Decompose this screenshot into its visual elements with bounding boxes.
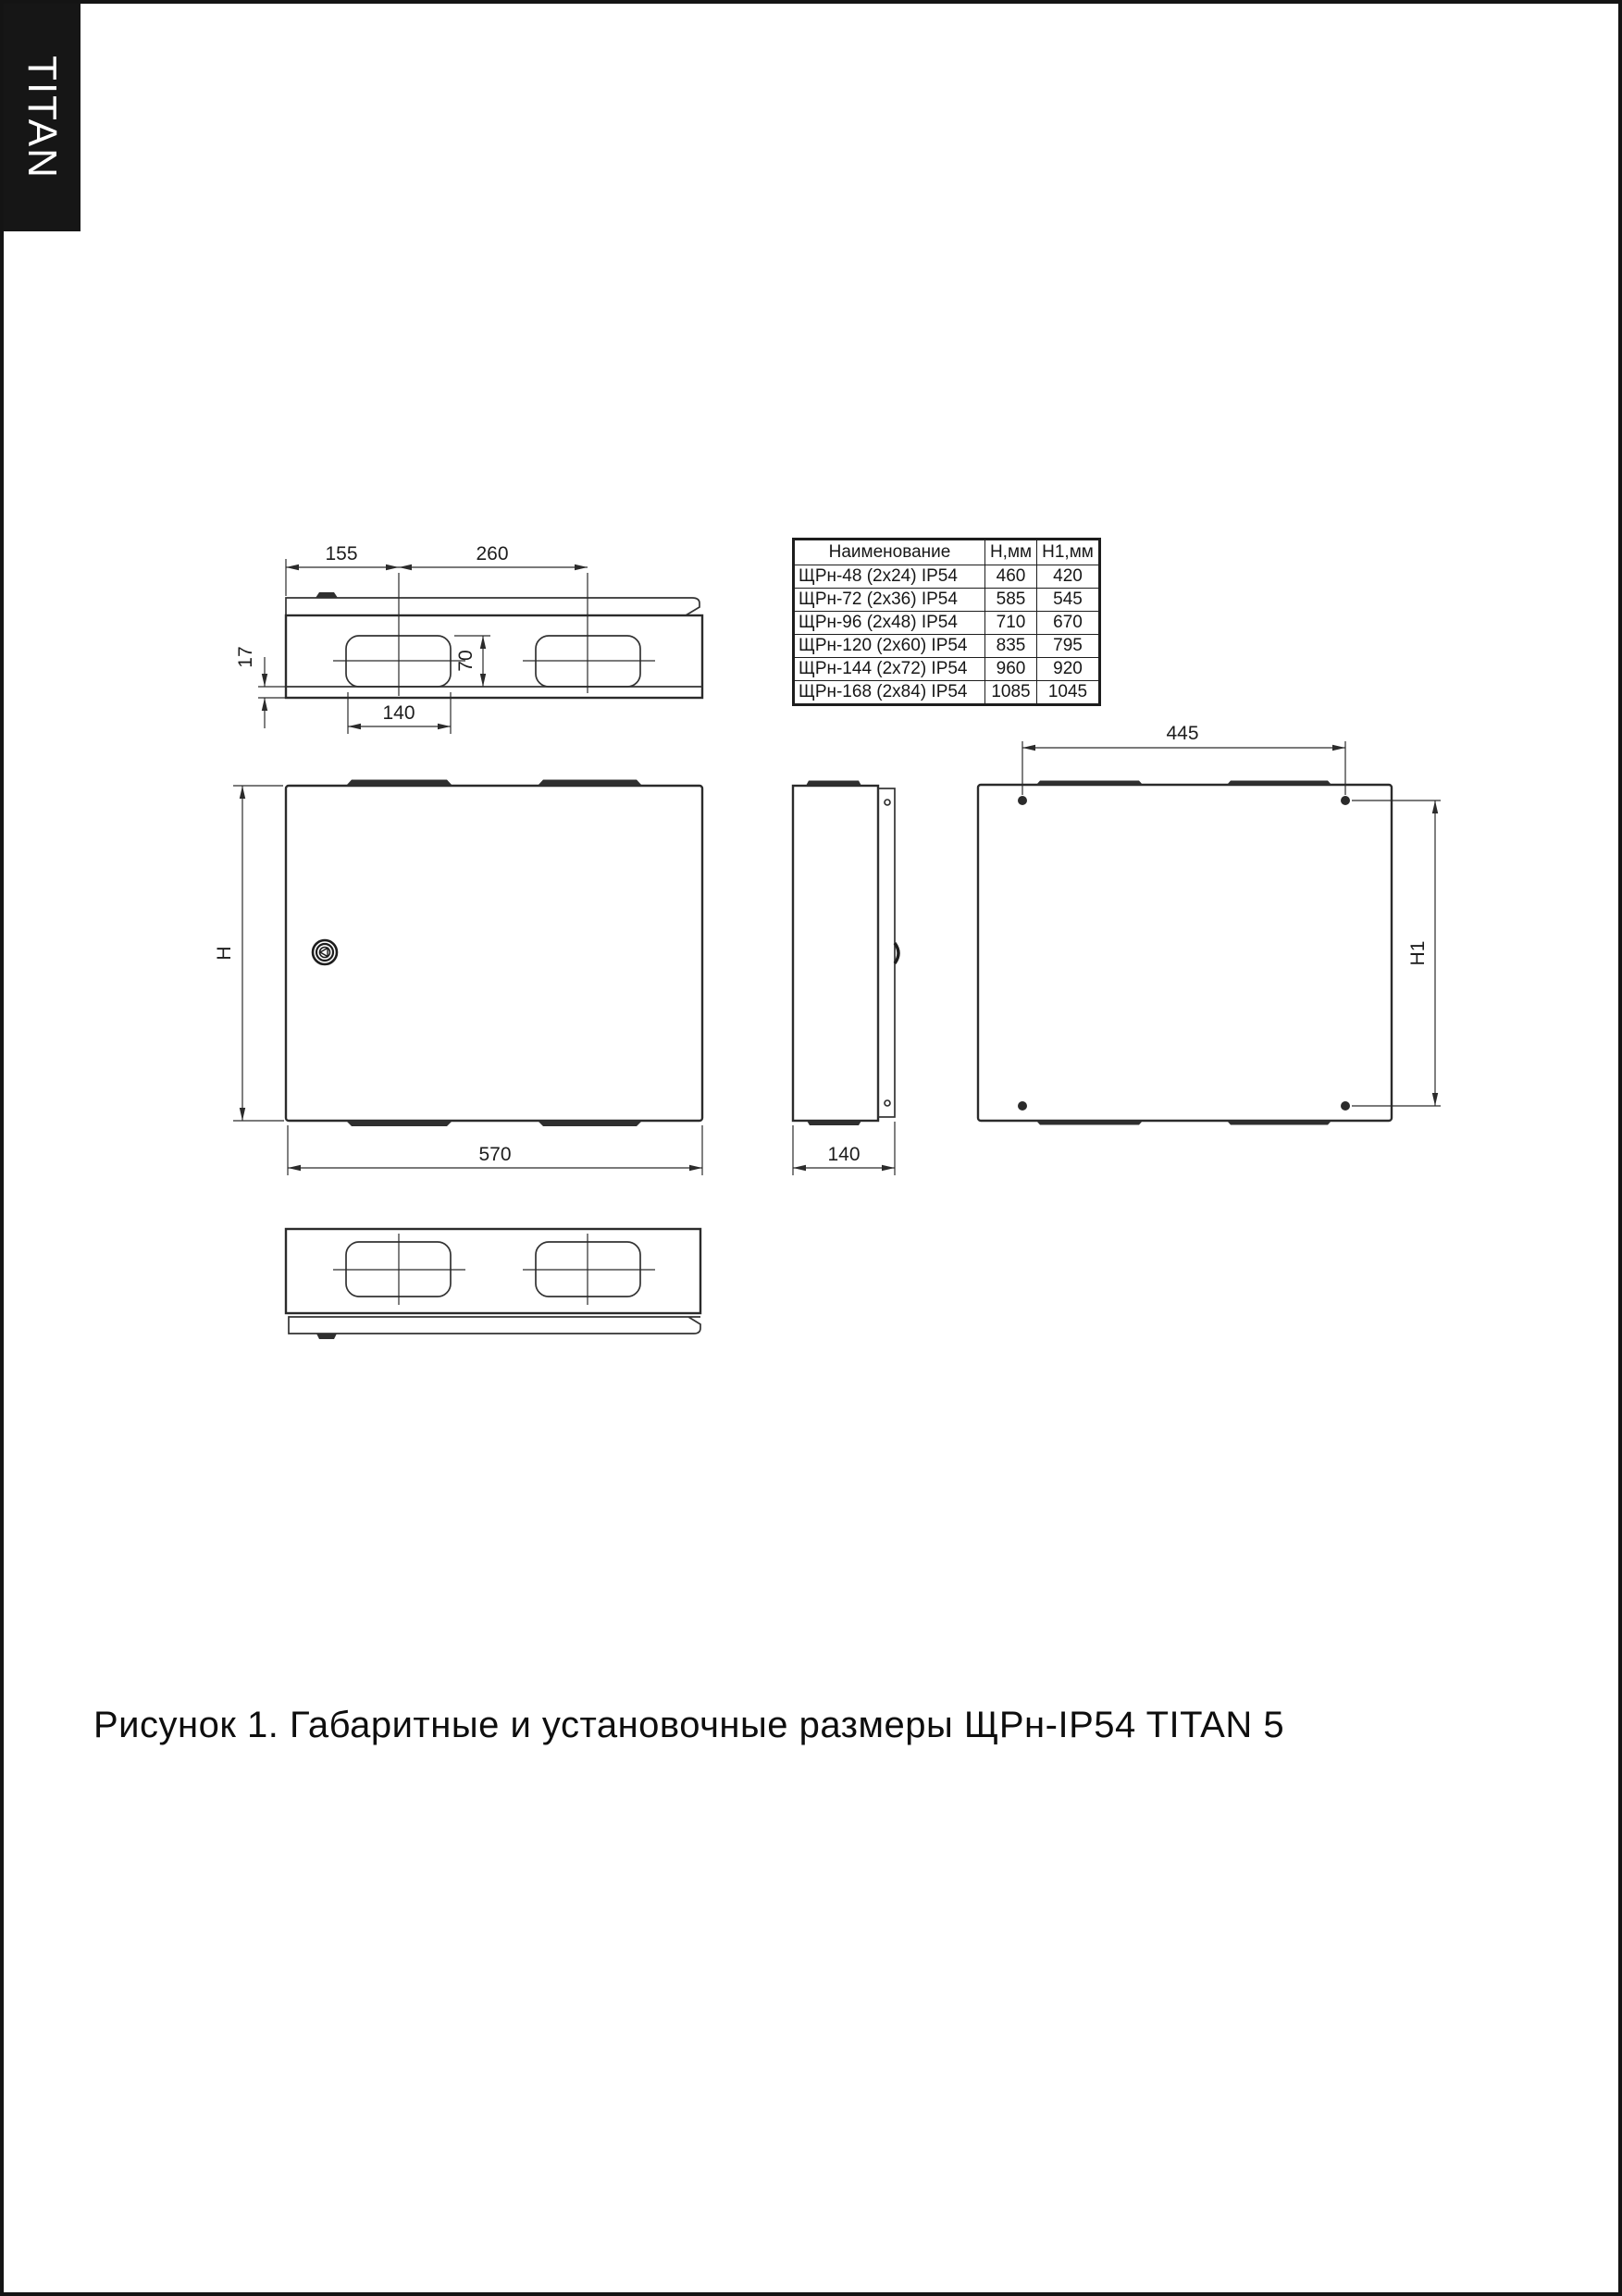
view-bottom [286,1229,700,1339]
model-h1: 545 [1037,589,1100,612]
table-header-row: Наименование Н,мм Н1,мм [794,540,1100,565]
screw-hole-icon [885,1100,890,1106]
model-name: ЩРн-48 (2х24) IP54 [794,565,985,589]
table-row: ЩРн-144 (2х72) IP54 960 920 [794,658,1100,681]
mounting-tab-icon [807,1121,861,1125]
col-header-h: Н,мм [985,540,1037,565]
model-name: ЩРн-144 (2х72) IP54 [794,658,985,681]
dim-label-140-side: 140 [827,1144,860,1165]
table-row: ЩРн-48 (2х24) IP54 460 420 [794,565,1100,589]
table-row: ЩРн-120 (2х60) IP54 835 795 [794,635,1100,658]
model-h1: 920 [1037,658,1100,681]
mounting-tab-icon [1036,1121,1143,1125]
screw-hole-icon [885,800,890,805]
model-h1: 420 [1037,565,1100,589]
model-h1: 795 [1037,635,1100,658]
model-name: ЩРн-96 (2х48) IP54 [794,612,985,635]
view-front: H 570 [214,780,702,1176]
mounting-tab-icon [346,780,452,787]
document-page: TITAN 155 260 [0,0,1622,2296]
col-header-h1: Н1,мм [1037,540,1100,565]
model-h1: 670 [1037,612,1100,635]
model-name: ЩРн-168 (2х84) IP54 [794,681,985,705]
door-lock-icon [313,940,337,964]
mounting-tab-icon [346,1121,452,1126]
view-rear: 445 H1 [978,723,1441,1125]
dim-label-70: 70 [455,650,477,671]
view-side: 140 [793,781,898,1176]
mounting-tab-icon [1227,781,1331,786]
dim-label-260: 260 [476,543,508,565]
model-name: ЩРн-120 (2х60) IP54 [794,635,985,658]
model-h1: 1045 [1037,681,1100,705]
view-top: 155 260 70 17 140 [235,543,702,734]
hinge-tab-icon [316,1334,337,1339]
mounting-tab-icon [806,781,861,787]
mounting-tab-icon [1036,781,1143,786]
table-row: ЩРн-168 (2х84) IP54 1085 1045 [794,681,1100,705]
mounting-hole-icon [1018,796,1027,805]
table-row: ЩРн-96 (2х48) IP54 710 670 [794,612,1100,635]
dim-label-155: 155 [325,543,357,565]
mounting-tab-icon [1227,1121,1331,1125]
dim-label-570: 570 [478,1144,511,1165]
spec-table: Наименование Н,мм Н1,мм ЩРн-48 (2х24) IP… [792,538,1101,706]
mounting-hole-icon [1018,1101,1027,1111]
model-name: ЩРн-72 (2х36) IP54 [794,589,985,612]
dim-label-17: 17 [235,646,256,667]
mounting-hole-icon [1341,796,1350,805]
mounting-hole-icon [1341,1101,1350,1111]
model-h: 710 [985,612,1037,635]
col-header-name: Наименование [794,540,985,565]
dim-label-445: 445 [1166,723,1198,744]
table-row: ЩРн-72 (2х36) IP54 585 545 [794,589,1100,612]
hinge-tab-icon [316,592,338,598]
mounting-tab-icon [538,1121,642,1126]
dim-label-140-top: 140 [382,702,415,724]
dim-label-H1: H1 [1407,941,1429,966]
dim-label-H: H [214,946,235,960]
model-h: 835 [985,635,1037,658]
model-h: 585 [985,589,1037,612]
model-h: 460 [985,565,1037,589]
model-h: 960 [985,658,1037,681]
model-h: 1085 [985,681,1037,705]
mounting-tab-icon [538,780,642,787]
technical-drawing: 155 260 70 17 140 [4,4,1618,2292]
figure-caption: Рисунок 1. Габаритные и установочные раз… [93,1705,1284,1746]
